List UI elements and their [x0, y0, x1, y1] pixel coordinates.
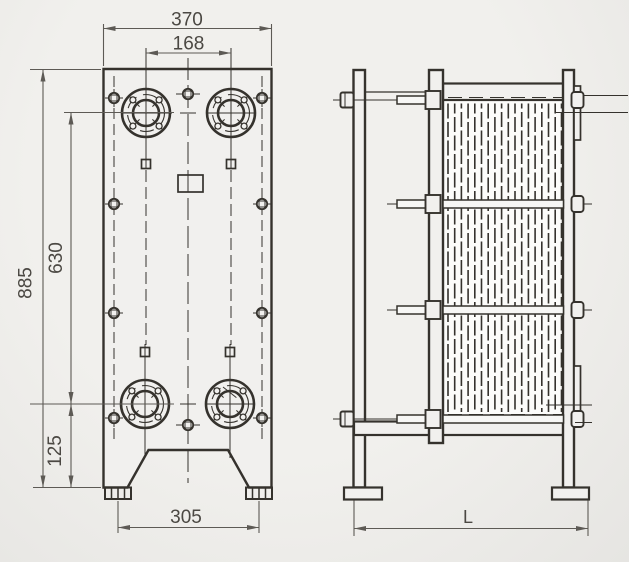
- dim-port-horizontal-spacing: 168: [146, 34, 231, 55]
- dim-port-vertical-spacing-label: 630: [46, 242, 67, 274]
- dim-overall-width-label: 370: [171, 10, 203, 31]
- dim-port-horizontal-spacing-label: 168: [173, 34, 205, 55]
- front-foot-left: [105, 488, 131, 500]
- fixed-frame-plate: [429, 70, 443, 443]
- dim-port-to-foot-label: 125: [45, 435, 66, 467]
- dim-foot-spacing-label: 305: [170, 507, 202, 528]
- dim-overall-length: L: [354, 501, 588, 537]
- dim-foot-spacing: 305: [118, 501, 259, 533]
- front-view: 370 168 885 630 125 305: [16, 10, 273, 534]
- side-foot-left: [344, 488, 382, 500]
- heat-exchanger-dimension-drawing: 370 168 885 630 125 305: [0, 0, 629, 562]
- dim-overall-length-label: L: [463, 507, 473, 527]
- side-foot-right: [552, 488, 589, 500]
- plate-pack-background: [443, 100, 563, 415]
- dim-overall-height-label: 885: [16, 267, 37, 299]
- side-view: L: [333, 70, 628, 536]
- dim-overall-height: 885: [16, 70, 102, 488]
- front-foot-right: [246, 488, 272, 500]
- dim-port-to-foot: 125: [45, 404, 71, 488]
